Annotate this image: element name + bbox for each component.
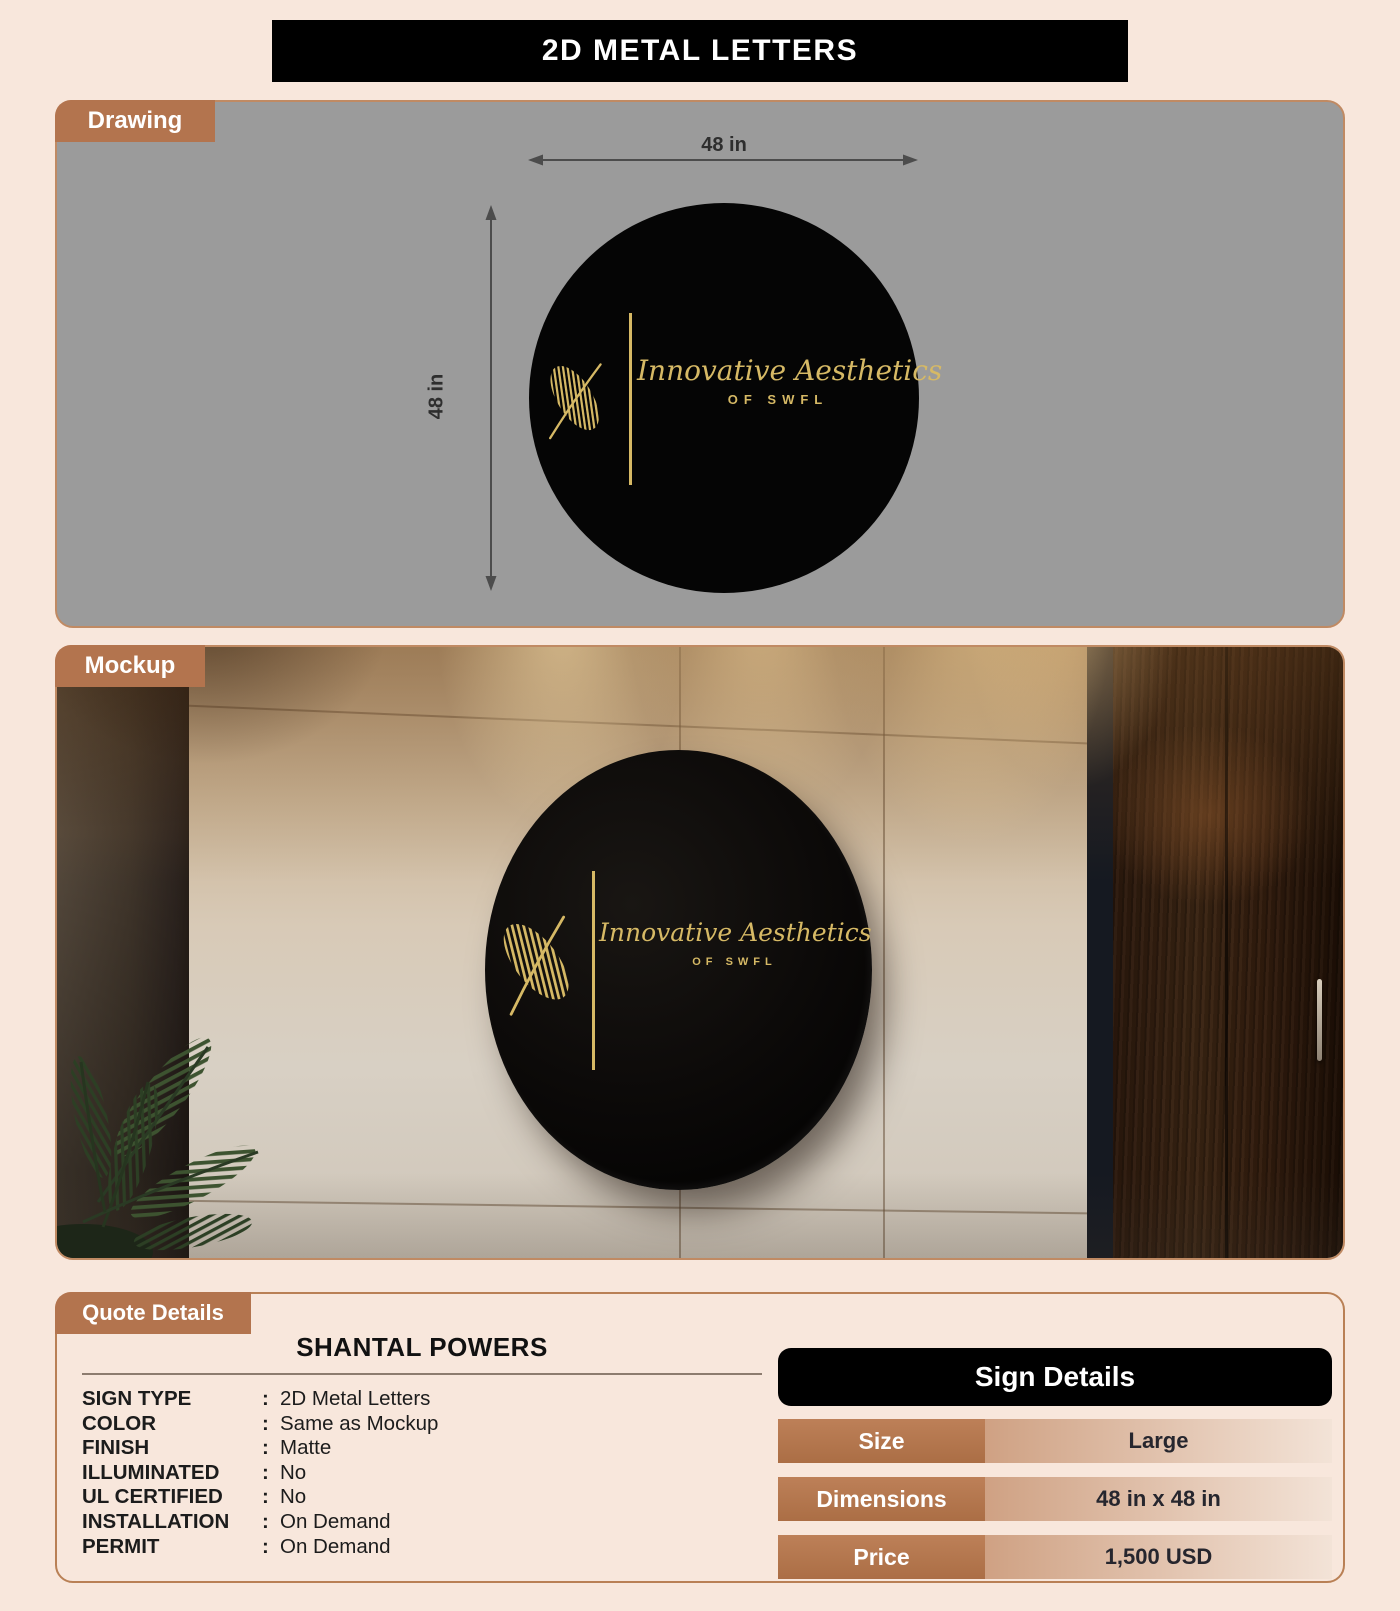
field-separator: : (262, 1535, 280, 1560)
logo-divider-line (629, 313, 632, 485)
sign-details-row: Dimensions 48 in x 48 in (778, 1477, 1332, 1521)
field-label: INSTALLATION (82, 1510, 262, 1535)
field-separator: : (262, 1412, 280, 1437)
field-value: On Demand (280, 1535, 762, 1560)
quote-section-label: Quote Details (82, 1300, 224, 1326)
field-separator: : (262, 1510, 280, 1535)
mockup-panel: Innovative Aesthetics OF SWFL (55, 645, 1345, 1260)
sign-drawing-circle: Innovative Aesthetics OF SWFL (529, 203, 919, 593)
field-separator: : (262, 1485, 280, 1510)
field-value: 2D Metal Letters (280, 1387, 762, 1412)
door-handle (1317, 979, 1322, 1061)
field-separator: : (262, 1387, 280, 1412)
row-label: Price (778, 1535, 985, 1579)
field-label: ILLUMINATED (82, 1461, 262, 1486)
brand-subtitle: OF SWFL (599, 956, 865, 968)
quote-field-row: FINISH : Matte (82, 1436, 762, 1461)
tile-seam (883, 647, 885, 1260)
quote-field-row: SIGN TYPE : 2D Metal Letters (82, 1387, 762, 1412)
sign-details-table: Sign Details Size Large Dimensions 48 in… (778, 1348, 1332, 1579)
sign-details-header: Sign Details (778, 1348, 1332, 1406)
field-label: UL CERTIFIED (82, 1485, 262, 1510)
height-dimension-label: 48 in (426, 347, 449, 447)
quote-field-row: INSTALLATION : On Demand (82, 1510, 762, 1535)
quote-section-tab: Quote Details (55, 1292, 251, 1334)
width-dimension-arrow-icon (528, 152, 918, 168)
row-value: Large (985, 1419, 1332, 1463)
logo-text-block: Innovative Aesthetics OF SWFL (599, 916, 865, 968)
sign-details-title: Sign Details (975, 1361, 1135, 1393)
quote-field-row: UL CERTIFIED : No (82, 1485, 762, 1510)
palm-leaf-icon (535, 358, 617, 442)
field-value: No (280, 1461, 762, 1486)
sign-details-row: Size Large (778, 1419, 1332, 1463)
mockup-section-label: Mockup (85, 652, 176, 680)
door-seam (1225, 647, 1228, 1260)
mockup-sign: Innovative Aesthetics OF SWFL (485, 750, 872, 1190)
row-label: Size (778, 1419, 985, 1463)
field-label: SIGN TYPE (82, 1387, 262, 1412)
field-separator: : (262, 1436, 280, 1461)
palm-plant (55, 977, 298, 1260)
row-label: Dimensions (778, 1477, 985, 1521)
row-value: 48 in x 48 in (985, 1477, 1332, 1521)
quote-fields: SIGN TYPE : 2D Metal Letters COLOR : Sam… (82, 1387, 762, 1559)
field-separator: : (262, 1461, 280, 1486)
height-dimension-arrow-icon (483, 205, 499, 591)
field-value: Same as Mockup (280, 1412, 762, 1437)
palm-leaf-icon (490, 908, 586, 1020)
sign-details-rows: Size Large Dimensions 48 in x 48 in Pric… (778, 1419, 1332, 1579)
customer-name: SHANTAL POWERS (82, 1332, 762, 1363)
row-value: 1,500 USD (985, 1535, 1332, 1579)
wood-door (1113, 647, 1345, 1260)
sign-details-row: Price 1,500 USD (778, 1535, 1332, 1579)
drawing-section-label: Drawing (88, 107, 183, 135)
brand-subtitle: OF SWFL (637, 392, 913, 407)
brand-name: Innovative Aesthetics (637, 353, 913, 389)
page-title: 2D METAL LETTERS (542, 34, 858, 68)
mockup-section-tab: Mockup (55, 645, 205, 687)
divider (82, 1373, 762, 1375)
field-value: On Demand (280, 1510, 762, 1535)
field-value: Matte (280, 1436, 762, 1461)
page-title-bar: 2D METAL LETTERS (272, 20, 1128, 82)
logo-text-block: Innovative Aesthetics OF SWFL (637, 353, 913, 407)
field-value: No (280, 1485, 762, 1510)
drawing-panel: 48 in 48 in Innovative Aesthetics OF SWF… (55, 100, 1345, 628)
field-label: FINISH (82, 1436, 262, 1461)
mockup-photo: Innovative Aesthetics OF SWFL (57, 647, 1343, 1258)
quote-field-row: COLOR : Same as Mockup (82, 1412, 762, 1437)
door-frame-gap (1087, 647, 1113, 1260)
logo-divider-line (592, 871, 595, 1070)
quote-field-row: ILLUMINATED : No (82, 1461, 762, 1486)
drawing-section-tab: Drawing (55, 100, 215, 142)
field-label: PERMIT (82, 1535, 262, 1560)
quote-details-panel: SHANTAL POWERS SIGN TYPE : 2D Metal Lett… (55, 1292, 1345, 1583)
quote-summary: SHANTAL POWERS SIGN TYPE : 2D Metal Lett… (82, 1332, 762, 1559)
brand-name: Innovative Aesthetics (599, 916, 865, 949)
field-label: COLOR (82, 1412, 262, 1437)
quote-sheet: 2D METAL LETTERS 48 in 48 in Innovative … (0, 0, 1400, 1611)
quote-field-row: PERMIT : On Demand (82, 1535, 762, 1560)
